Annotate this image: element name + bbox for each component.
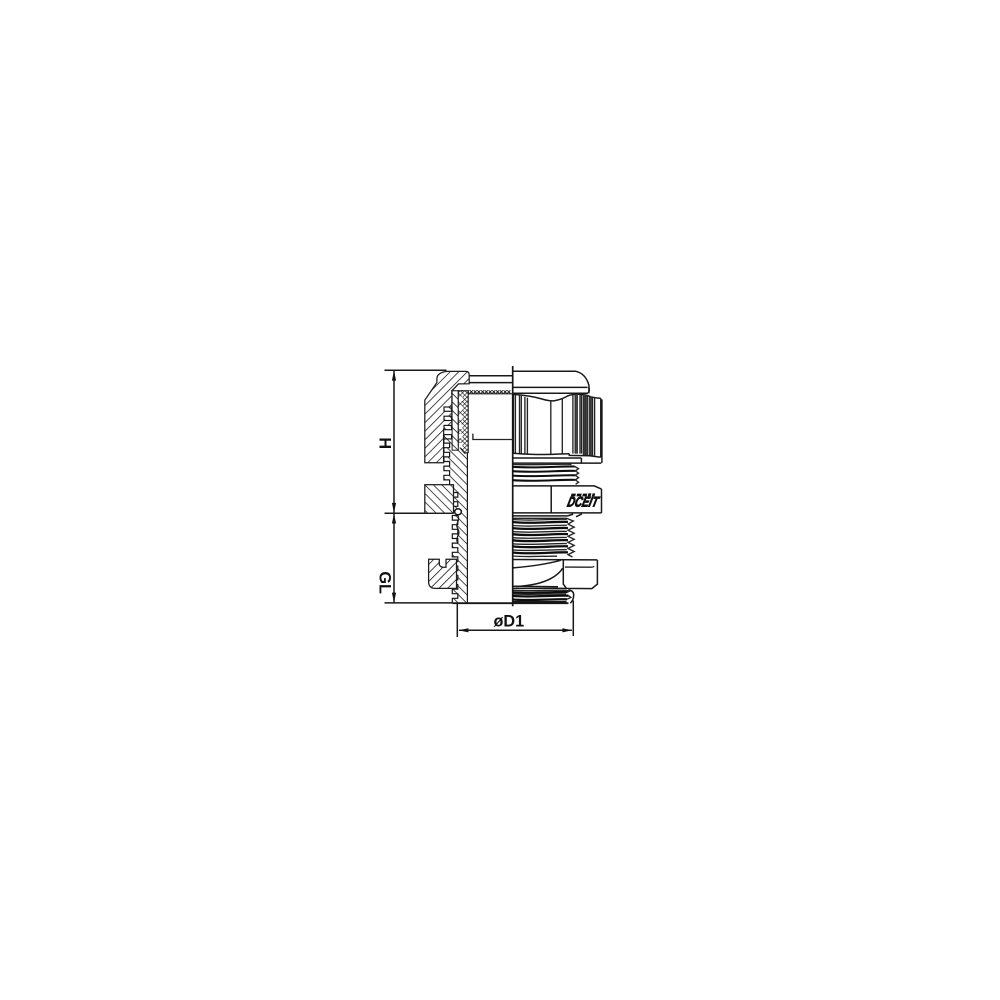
svg-text:DCEIT: DCEIT [566,495,601,511]
svg-text:H: H [376,437,394,449]
svg-text:GL: GL [376,571,394,594]
svg-text:øD1: øD1 [494,612,525,630]
